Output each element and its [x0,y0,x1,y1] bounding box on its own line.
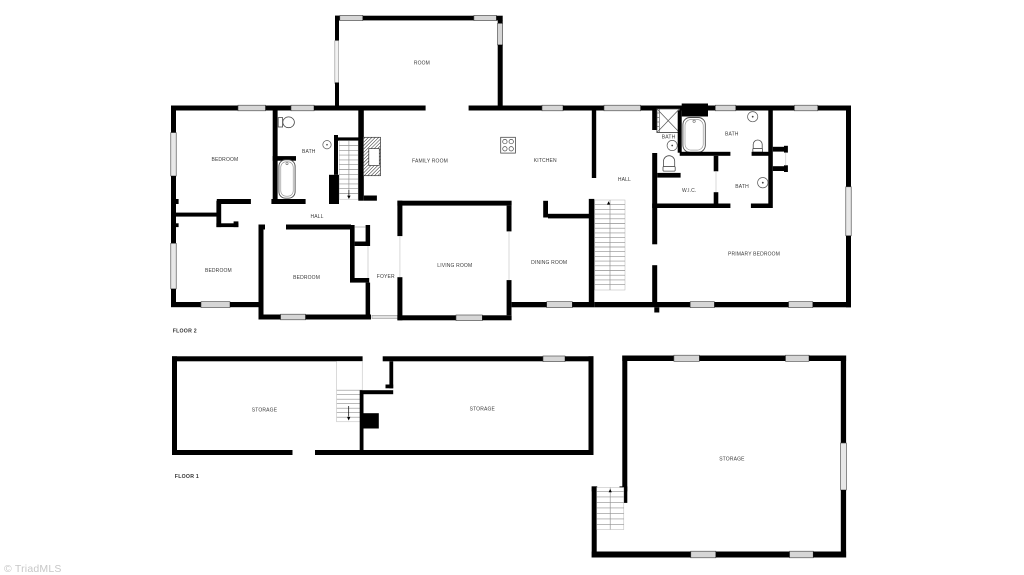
svg-text:ROOM: ROOM [414,60,430,66]
svg-text:BATH: BATH [725,131,739,137]
svg-text:W.I.C.: W.I.C. [682,188,697,194]
svg-text:© TriadMLS: © TriadMLS [4,563,62,575]
svg-text:FOYER: FOYER [377,274,395,280]
svg-text:HALL: HALL [310,214,323,220]
svg-text:BATH: BATH [302,149,316,155]
svg-text:STORAGE: STORAGE [470,407,496,413]
svg-text:HALL: HALL [618,177,631,183]
svg-text:BATH: BATH [735,184,749,190]
svg-text:FLOOR 2: FLOOR 2 [173,328,197,334]
svg-text:STORAGE: STORAGE [252,407,278,413]
svg-text:PRIMARY BEDROOM: PRIMARY BEDROOM [728,251,780,257]
svg-text:FAMILY ROOM: FAMILY ROOM [412,158,448,164]
svg-text:BEDROOM: BEDROOM [211,157,238,163]
svg-text:FLOOR 1: FLOOR 1 [175,474,199,480]
svg-text:KITCHEN: KITCHEN [534,158,557,164]
svg-text:LIVING ROOM: LIVING ROOM [437,263,472,269]
svg-text:DINING ROOM: DINING ROOM [531,260,567,266]
svg-text:BEDROOM: BEDROOM [205,268,232,274]
svg-text:BEDROOM: BEDROOM [293,275,320,281]
svg-text:BATH: BATH [662,134,676,140]
svg-text:STORAGE: STORAGE [719,457,745,463]
